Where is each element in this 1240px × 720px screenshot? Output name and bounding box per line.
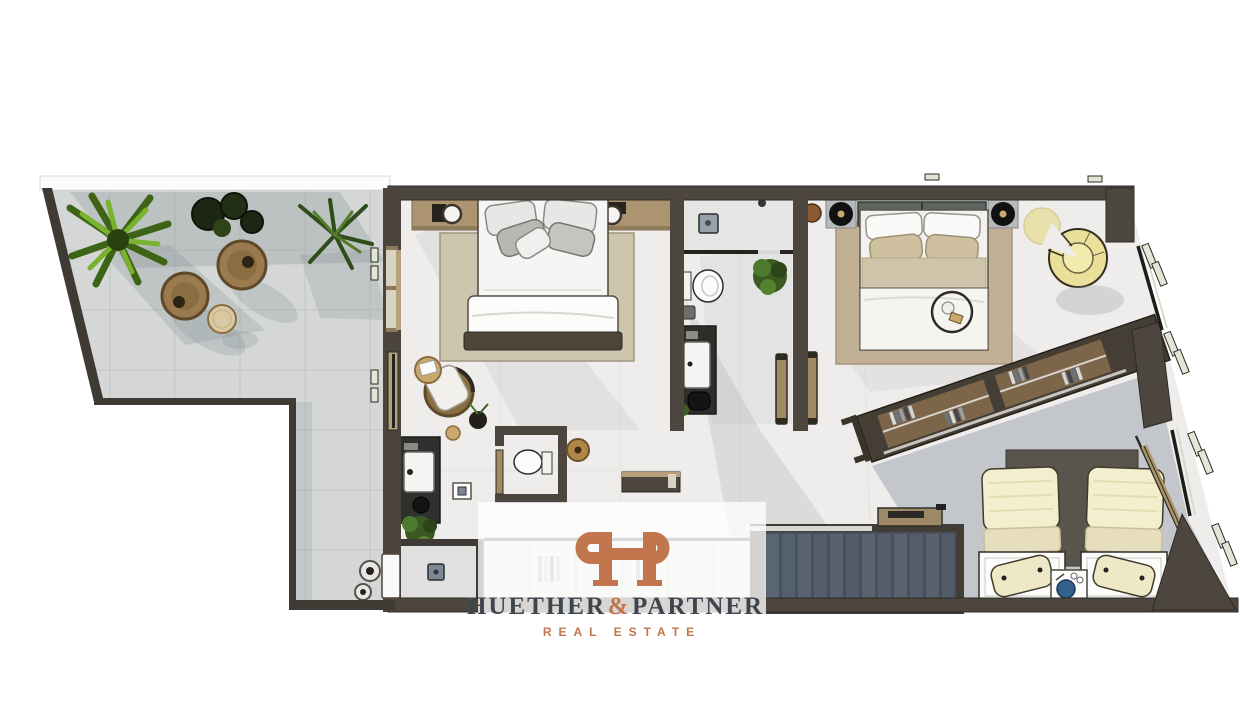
pouf <box>567 439 589 461</box>
toilet <box>514 450 542 474</box>
single-bed <box>1085 467 1164 554</box>
walk-in-shower <box>676 198 796 254</box>
terrace-parapet <box>40 176 390 190</box>
entry-door <box>382 554 400 598</box>
single-bed-bench <box>1081 552 1167 602</box>
brand-tagline: REAL ESTATE <box>543 625 701 639</box>
bath-west-wall <box>670 193 684 431</box>
vanity-sink-west <box>398 437 440 523</box>
brand-name-right: PARTNER <box>632 593 764 620</box>
alarm-clock <box>443 205 461 223</box>
north-wall <box>388 186 1134 200</box>
decor-sphere <box>1057 580 1075 598</box>
wicker-lounge-chair <box>218 241 266 289</box>
toilet <box>682 270 723 302</box>
round-side-table <box>208 305 236 333</box>
brand-ampersand: & <box>608 593 631 620</box>
terrace-south-wall <box>94 398 296 405</box>
open-door <box>776 354 787 424</box>
window-handles-north <box>925 174 1102 182</box>
bedside-table <box>1051 570 1087 602</box>
record-player-nightstand <box>988 200 1018 228</box>
wall-block <box>1106 188 1134 242</box>
planter-pot <box>360 561 380 581</box>
sheet-band <box>862 258 986 290</box>
watermark: HUETHER & PARTNER REAL ESTATE <box>467 502 766 648</box>
wicker-lounge-chair <box>162 273 208 319</box>
wall-console <box>622 472 680 492</box>
foot-bench <box>464 332 622 350</box>
chair-shadow <box>1056 285 1124 315</box>
terrace-east-wall <box>289 398 296 607</box>
double-bed <box>858 202 988 350</box>
bath-east-wall <box>793 193 808 431</box>
double-bed <box>464 197 622 350</box>
wood-stool <box>446 426 460 440</box>
terrace-sliding-door <box>386 246 401 332</box>
wc-door <box>496 450 503 494</box>
single-bed <box>982 467 1061 554</box>
floor-plan-canvas: HUETHER & PARTNER REAL ESTATE <box>0 0 1240 720</box>
brand-name-left: HUETHER <box>467 593 606 620</box>
floor-plan-rendering: HUETHER & PARTNER REAL ESTATE <box>0 0 1240 720</box>
planter-pot <box>355 584 371 600</box>
towel <box>688 392 710 410</box>
record-player-nightstand <box>826 200 856 228</box>
wall-shelf <box>878 504 946 526</box>
round-side-table <box>415 357 441 383</box>
